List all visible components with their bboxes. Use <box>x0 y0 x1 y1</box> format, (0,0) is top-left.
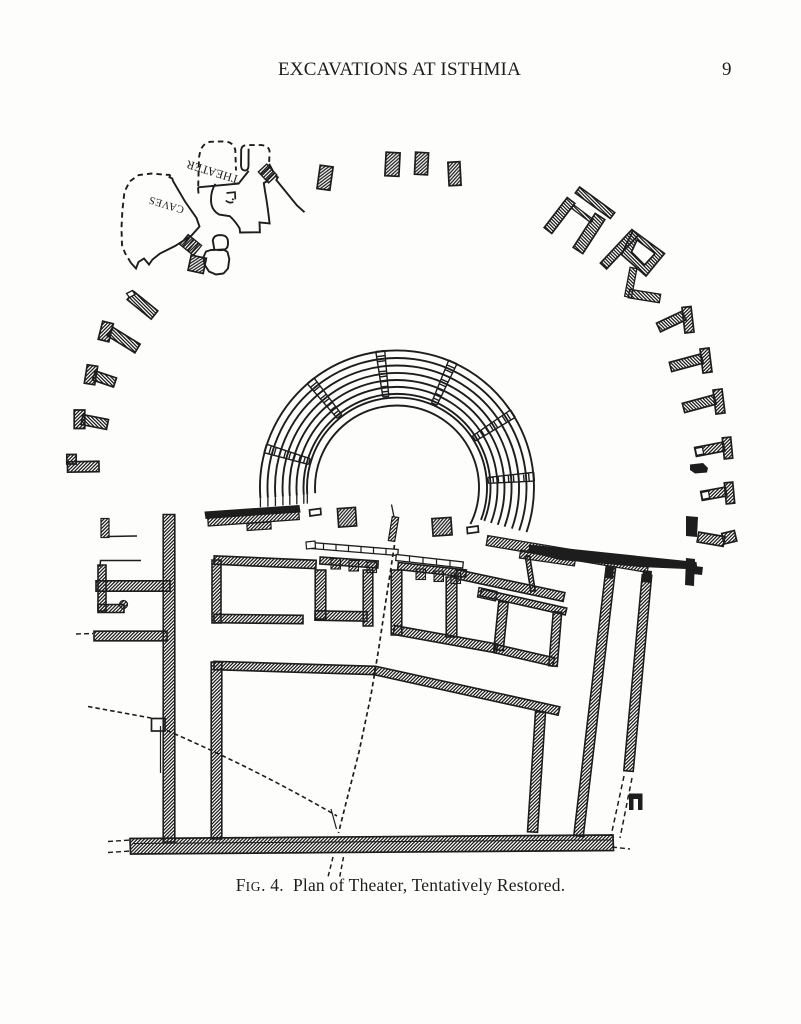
svg-text:THEATER: THEATER <box>184 157 240 186</box>
svg-text:CAVES: CAVES <box>147 193 185 215</box>
